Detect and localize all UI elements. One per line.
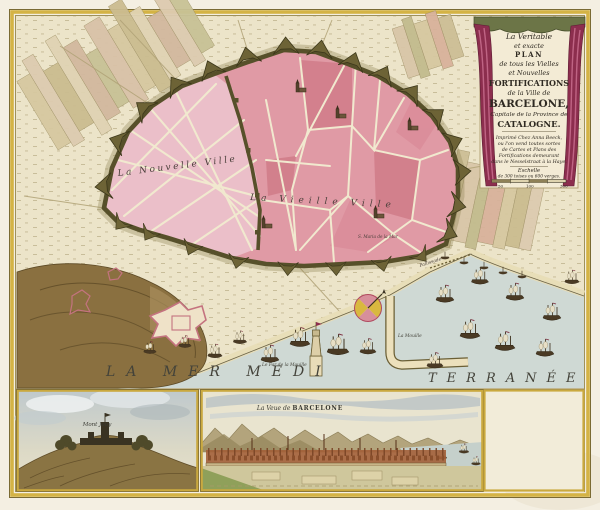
- title-line-3: PLAN: [515, 50, 543, 59]
- label-panorama: La Veue de BARCELONE: [256, 405, 343, 412]
- label-sea-right: TERRANÉE: [428, 370, 585, 386]
- antique-map-scan: La Nouvelle Ville La Vieille Ville S. Ma…: [0, 0, 600, 510]
- imprint-line-3: de Cartes et Plans des: [502, 147, 557, 153]
- insets-band: Mont Jouy: [14, 388, 584, 492]
- inset-panorama: La Veue de BARCELONE: [201, 390, 484, 492]
- title-line-9: Capitale de la Province de: [490, 112, 568, 118]
- imprint-line-5: dans le Nesselstraat à la Haye.: [491, 158, 567, 165]
- title-line-10: CATALOGNE.: [497, 120, 560, 130]
- title-cartouche: La Veritable et exacte PLAN de tous les …: [474, 17, 585, 189]
- panorama-foreground: [201, 466, 483, 491]
- title-line-5: et Nouvelles: [508, 69, 550, 77]
- main-map: La Nouvelle Ville La Vieille Ville S. Ma…: [7, 0, 586, 389]
- title-line-6: FORTIFICATIONS: [489, 78, 569, 88]
- title-line-4: de tous les Vielles: [499, 60, 559, 68]
- scale-title: Eschelle: [517, 168, 540, 174]
- inset-montjuic: Mont Jouy: [14, 388, 199, 492]
- scale-tick-100: 100: [526, 184, 534, 189]
- label-sea-left: LA MER MEDI: [105, 364, 332, 380]
- title-line-8: BARCELONE,: [489, 98, 569, 110]
- label-mole: La Mouille: [397, 334, 422, 339]
- label-montjuic: Mont Jouy: [82, 422, 113, 428]
- title-line-2: et exacte: [514, 42, 544, 50]
- panorama-label-script: La Veue de: [256, 405, 292, 412]
- scale-tick-50: 50: [498, 184, 504, 189]
- cartouche-valance: [474, 17, 585, 33]
- imprint-line-1: Imprimé Chez Anna Beeck,: [495, 134, 563, 141]
- panorama-label-caps: BARCELONE: [292, 405, 343, 412]
- label-church: S. Maria de la Mar: [358, 234, 399, 239]
- title-line-1: La Veritable: [505, 32, 553, 41]
- imprint-line-4: Fortifications demeurant: [498, 153, 560, 159]
- blank-panel: [484, 390, 584, 491]
- map-canvas: La Nouvelle Ville La Vieille Ville S. Ma…: [0, 0, 600, 510]
- scale-tick-300: 300: [560, 184, 568, 189]
- title-line-7: de la Ville de: [508, 89, 551, 97]
- imprint-line-2: ou l'on vend toutes sortes: [498, 141, 561, 147]
